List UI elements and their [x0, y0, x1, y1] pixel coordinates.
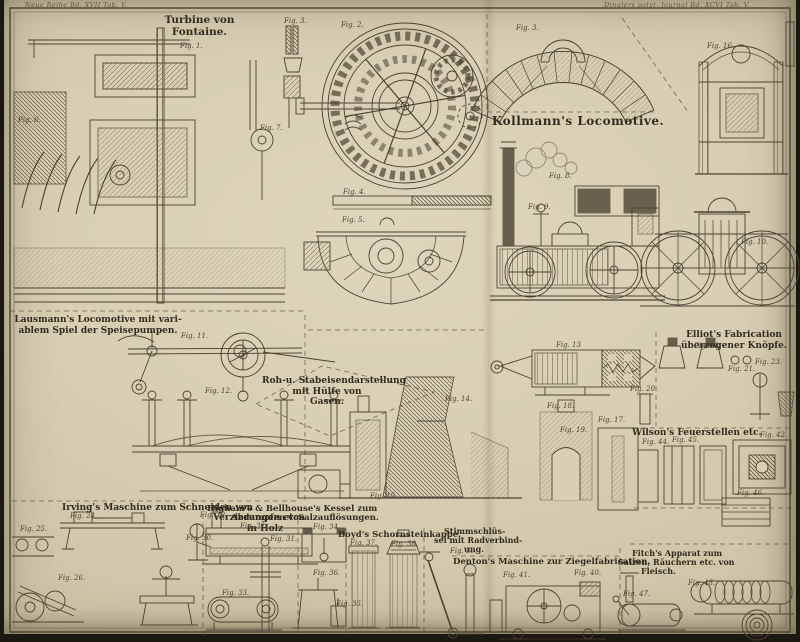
title-line: Kollmann's Locomotive.	[492, 114, 660, 128]
section-title-fitch-line2: Salzen, Räuchern etc. von	[618, 558, 734, 567]
fig-label-11: Fig. 11.	[181, 332, 208, 340]
fig-label-26: Fig. 26.	[58, 574, 85, 582]
fig-label-4: Fig. 4.	[343, 188, 366, 196]
fig-label-38: Fig. 38.	[391, 540, 418, 548]
fig-label-22: Fig. 22.	[694, 342, 721, 350]
fig-label-3b: Fig. 3.	[516, 24, 539, 32]
title-line: mit Hülfe von	[262, 387, 392, 398]
turbine-fig1-drawing	[14, 28, 285, 303]
fig-label-30: Fig. 30.	[186, 534, 213, 542]
section-title-roheisen: Roh-u. Stabeisendarstellung mit Hülfe vo…	[262, 376, 392, 408]
fig-label-35: Fig. 35.	[336, 600, 363, 608]
title-line: Denton's Maschine zur Ziegelfabrication.	[453, 557, 645, 567]
fig-label-47: Fig. 47.	[623, 590, 650, 598]
fig-label-44: Fig. 44.	[642, 438, 669, 446]
turbine-fig5-fan-drawing	[304, 218, 466, 304]
fig-label-8: Fig. 8.	[549, 172, 572, 180]
fig-label-34: Fig. 34.	[313, 523, 340, 531]
fig-label-31: Fig. 31.	[270, 535, 297, 543]
title-line: Salzen, Räuchern etc. von	[618, 558, 734, 567]
fig-label-36: Fig. 36.	[313, 569, 340, 577]
section-title-denton: Denton's Maschine zur Ziegelfabrication.	[453, 557, 645, 567]
fig-label-45: Fig. 45.	[672, 436, 699, 444]
kollmann-fig8-firebox-drawing	[575, 186, 659, 216]
title-line: Lausmann's Locomotive mit vari-	[13, 315, 183, 326]
section-title-kollmann: Kollmann's Locomotive.	[492, 114, 660, 128]
scanned-engraving-page: { "plate": { "marginalia_left": "Neue Re…	[0, 0, 800, 642]
fig-label-1: Fig. 1.	[180, 42, 203, 50]
roheisen-small-furnaces-drawing	[540, 394, 653, 510]
fig-label-40: Fig. 40.	[574, 569, 601, 577]
kollmann-fig10-end-view-drawing	[640, 198, 799, 306]
fig-label-25: Fig. 25.	[20, 525, 47, 533]
fig-label-23: Fig. 23.	[755, 358, 782, 366]
title-line: Turbine von	[147, 14, 252, 26]
fig-label-39: Fig. 39.	[450, 547, 477, 555]
section-title-higham-line3: Salzauflösungen.	[298, 513, 379, 523]
section-title-turbine: Turbine von Fontaine.	[147, 14, 252, 39]
title-line: Gasen.	[262, 397, 392, 408]
section-title-elliot: Elliot's Fabrication überzogener Knöpfe.	[670, 330, 798, 351]
fig-label-18: Fig. 18.	[547, 402, 574, 410]
fig-label-42: Fig. 42.	[760, 431, 787, 439]
fig-label-13: Fig. 13	[556, 341, 581, 349]
turbine-fig2-wheel-drawing	[296, 23, 488, 189]
fig-label-29: Fig. 29.	[200, 511, 227, 519]
wilson-grate-figs-drawing	[638, 440, 791, 526]
title-line: Salzauflösungen.	[298, 513, 379, 523]
fig-label-33: Fig. 33.	[222, 589, 249, 597]
fig-label-21: Fig. 21.	[728, 365, 755, 373]
fig-label-16: Fig. 16.	[707, 42, 734, 50]
irving-figs-drawing	[12, 512, 346, 632]
title-line: ablem Spiel der Speisepumpen.	[13, 326, 183, 337]
title-line: überzogener Knöpfe.	[670, 341, 798, 352]
fig-label-10: Fig. 10.	[741, 238, 768, 246]
fig-label-9: Fig. 9.	[528, 203, 551, 211]
fig-label-20: Fig. 20.	[630, 385, 657, 393]
fig-label-14: Fig. 14.	[445, 395, 472, 403]
fig-label-6: Fig. 6.	[18, 116, 41, 124]
title-line: Elliot's Fabrication	[670, 330, 798, 341]
fig-label-17: Fig. 17.	[598, 416, 625, 424]
fig-label-15: Fig. 15.	[370, 492, 397, 500]
fig-label-3a: Fig. 3.	[284, 17, 307, 25]
title-line: Roh-u. Stabeisendarstellung	[262, 376, 392, 387]
fig-label-48: Fig. 48.	[688, 579, 715, 587]
section-title-fitch-line3: Fleisch.	[641, 567, 676, 576]
turbine-fig4-bar-drawing	[333, 196, 491, 209]
fig-label-37: Fig. 37.	[350, 539, 377, 547]
kollmann-fig9-locomotive-drawing	[490, 142, 665, 300]
fig-label-24: Fig. 24.	[70, 512, 97, 520]
fig-label-2: Fig. 2.	[341, 21, 364, 29]
title-line: Fontaine.	[147, 26, 252, 38]
section-title-lausmann: Lausmann's Locomotive mit vari- ablem Sp…	[13, 315, 183, 336]
title-line: Fleisch.	[641, 567, 676, 576]
marginalia-left: Neue Reihe Bd. XVII Tab. V.	[25, 1, 128, 9]
fig-label-41: Fig. 41.	[503, 571, 530, 579]
fig-label-32: Fig. 32.	[240, 522, 267, 530]
turbine-fig3-detail-drawing	[284, 26, 302, 128]
marginalia-right: Dinglers polyt. Journal Bd. XCVI Tab. V.	[604, 1, 750, 9]
fig-label-19: Fig. 19.	[560, 426, 587, 434]
fig-label-12: Fig. 12.	[205, 387, 232, 395]
fig-label-46: Fig. 46.	[737, 489, 764, 497]
fig-label-7: Fig. 7.	[260, 124, 283, 132]
turbine-fig3-bucket-arc-drawing	[472, 40, 654, 122]
fig-label-5: Fig. 5.	[342, 216, 365, 224]
